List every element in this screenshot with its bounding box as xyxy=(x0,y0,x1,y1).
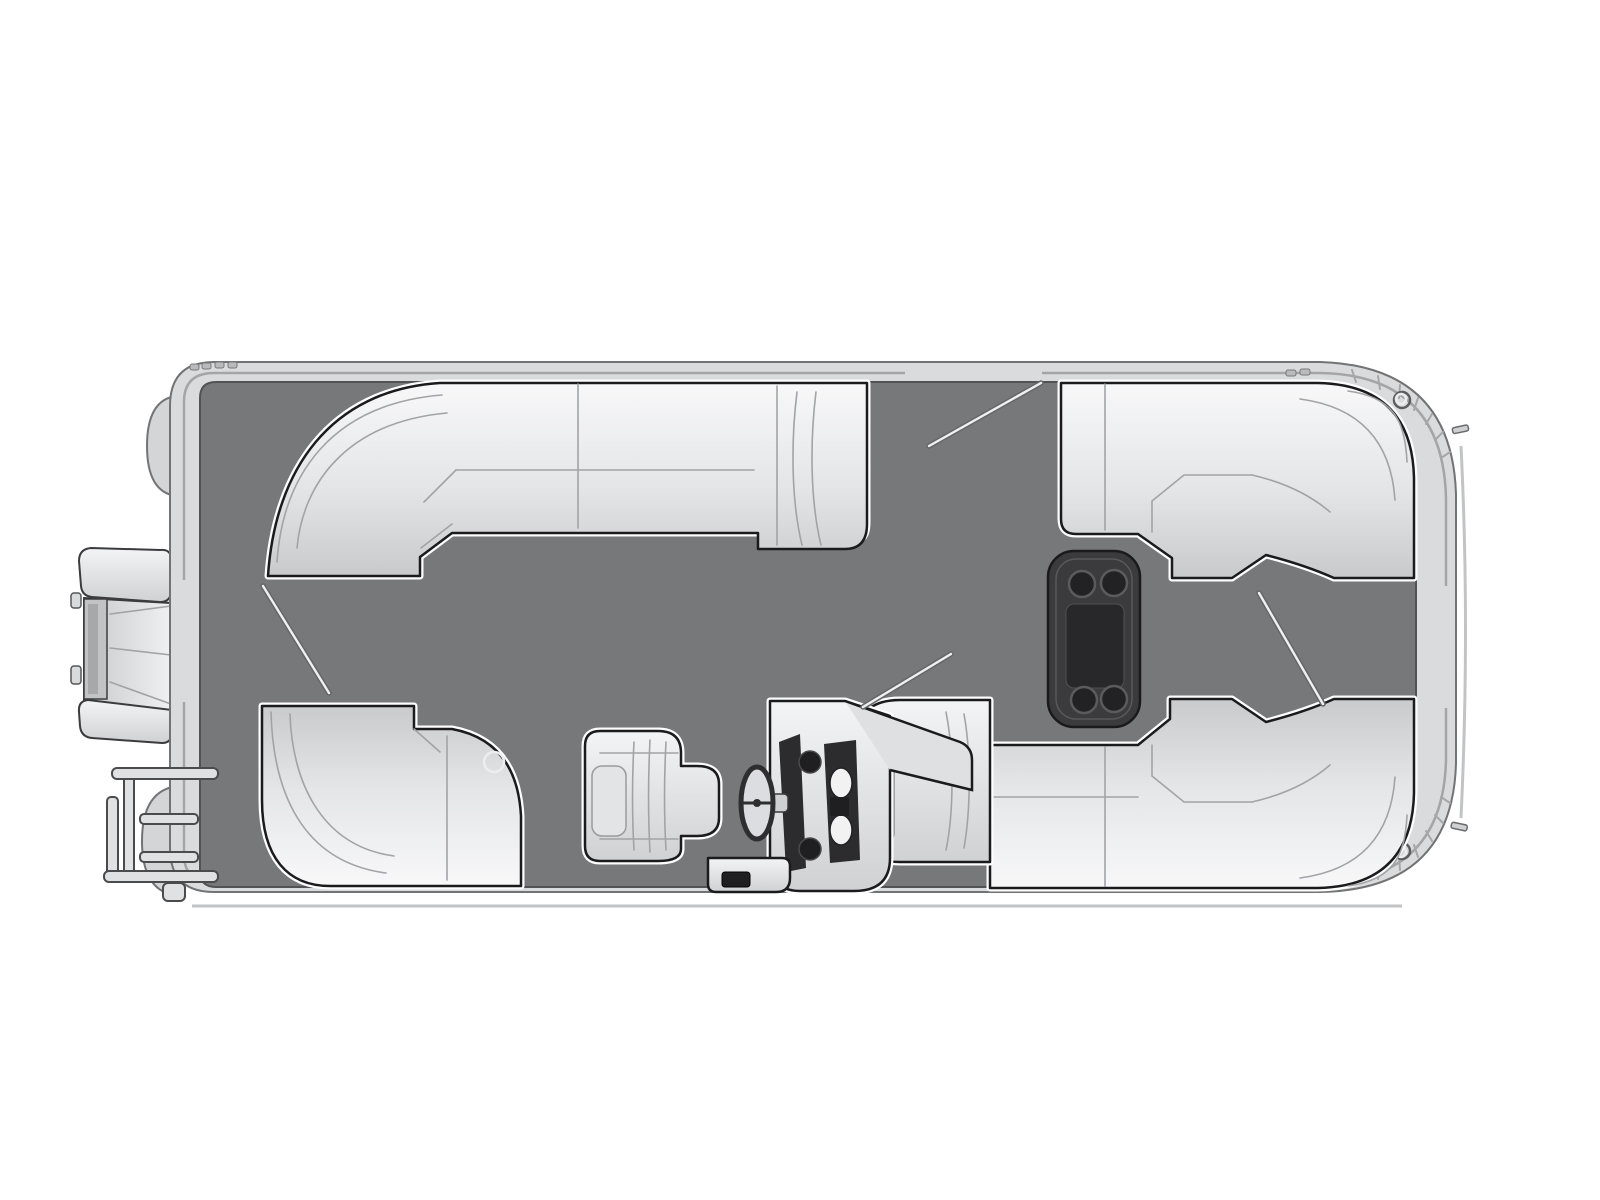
cup-holder-1 xyxy=(1069,571,1095,597)
cleat-top xyxy=(1452,425,1469,434)
ladder-side-rail xyxy=(107,797,118,879)
motor-tab-upper xyxy=(71,593,81,608)
steering-wheel-hub xyxy=(753,799,761,807)
helm-dial-bottom xyxy=(830,815,852,845)
step-box-vent xyxy=(722,872,750,887)
pontoon-floorplan-diagram xyxy=(0,0,1600,1200)
bow-outer-tube-line xyxy=(1461,446,1466,818)
table-center-recess xyxy=(1066,604,1124,688)
cup-holder-4 xyxy=(1101,686,1127,712)
cup-holder-3 xyxy=(1071,687,1097,713)
ladder-rung-2 xyxy=(140,852,198,862)
motor-front-recess xyxy=(88,604,98,694)
floorplan-canvas xyxy=(0,0,1600,1200)
outboard-motor xyxy=(71,548,172,743)
chair-backrest-cushion xyxy=(592,766,626,836)
cup-holder-2 xyxy=(1101,570,1127,596)
ladder-post xyxy=(124,772,134,882)
motor-cowl-top-cap xyxy=(79,548,171,602)
ladder-rung-1 xyxy=(140,814,198,824)
helm-gauge-bottom xyxy=(799,838,821,860)
helm-gauge-top xyxy=(799,751,821,773)
cleat-bottom xyxy=(1451,822,1468,831)
motor-tab-lower xyxy=(71,666,81,684)
helm-dial-top xyxy=(830,768,852,798)
helm-switch-block xyxy=(830,797,849,816)
ladder-foot xyxy=(163,883,185,901)
cocktail-table xyxy=(1048,551,1140,727)
ladder-top-rail xyxy=(112,768,218,779)
step-box xyxy=(708,858,790,892)
ladder-bottom-rail xyxy=(104,871,218,882)
